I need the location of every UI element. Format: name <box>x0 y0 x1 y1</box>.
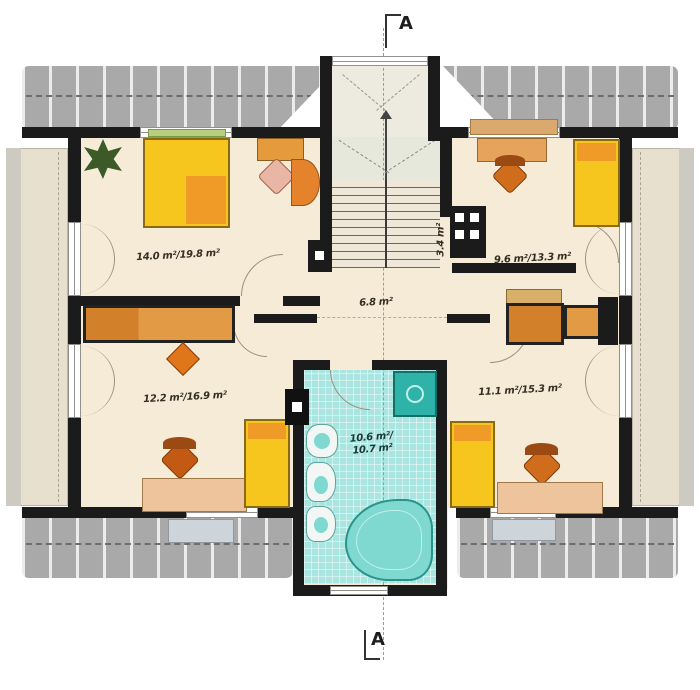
wardrobe <box>506 303 564 345</box>
flue <box>470 230 479 239</box>
toilet-seat <box>314 476 328 494</box>
desk <box>142 478 247 512</box>
bidet-bowl <box>314 517 328 533</box>
flue <box>455 230 464 239</box>
toilet <box>306 462 336 502</box>
left-roof-dashline <box>58 152 59 502</box>
hall-knee-wall-left <box>254 314 317 323</box>
bathroom-top-wall-left <box>304 360 330 370</box>
dormer-right-wall <box>428 56 440 141</box>
bathroom-top-wall-right <box>372 360 436 370</box>
roof-ridge-dash <box>26 543 289 545</box>
bottom-roof-band-left <box>22 514 293 578</box>
chair-back <box>525 443 558 455</box>
shower <box>393 371 437 417</box>
bathroom-right-wall <box>436 360 447 596</box>
right-wall <box>619 127 632 518</box>
wardrobe-end-wall <box>598 297 618 345</box>
window <box>68 222 81 296</box>
washing-machine <box>285 389 309 425</box>
washer-door <box>292 402 302 412</box>
single-bed <box>573 139 620 227</box>
bed-pillow <box>577 143 616 161</box>
dormer-floor <box>332 64 428 138</box>
window-box <box>168 519 234 543</box>
bed-blanket <box>186 176 226 224</box>
window <box>68 344 81 418</box>
floor-plan: 14.0 m²/19.8 m² 9.6 m²/13.3 m² 3.4 m² 6.… <box>0 0 700 690</box>
left-wall <box>68 127 81 518</box>
staircase-stringer <box>385 180 387 268</box>
chimney-block-small <box>308 240 332 272</box>
stair-arrow-head <box>380 110 392 119</box>
hall-dash-line <box>317 317 447 318</box>
window <box>619 344 632 418</box>
bottom-roof-band-right <box>457 514 678 578</box>
bed-pillow <box>248 423 286 439</box>
section-marker-top: A <box>399 13 413 34</box>
wardrobe <box>83 305 235 343</box>
window-planter <box>470 119 558 135</box>
tub-inner <box>356 510 422 570</box>
hall-knee-wall-right <box>447 314 490 323</box>
stairwell-right-wall <box>440 137 452 217</box>
dormer-window <box>332 56 428 66</box>
section-marker-bottom: A <box>371 629 385 650</box>
flue <box>315 251 324 260</box>
bathroom-window <box>330 586 388 595</box>
right-roof-dashline <box>640 152 641 502</box>
window-planter <box>148 129 226 137</box>
single-bed <box>244 419 290 508</box>
shower-drain <box>406 385 424 403</box>
chair-back <box>163 437 196 449</box>
window-box <box>492 519 556 541</box>
wardrobe-top <box>506 289 562 304</box>
desk <box>497 482 603 514</box>
chimney-block <box>450 206 486 258</box>
basin-bowl <box>314 433 330 449</box>
roof-ridge-dash <box>461 543 674 545</box>
flue <box>455 213 464 222</box>
bidet <box>306 506 336 542</box>
tl-room-bottom-stub <box>283 296 320 306</box>
double-bed <box>143 138 230 228</box>
chair-back <box>495 155 525 166</box>
window <box>619 222 632 296</box>
single-bed <box>450 421 495 508</box>
flue <box>470 213 479 222</box>
bed-pillow <box>454 425 491 441</box>
desk <box>257 138 304 161</box>
left-roof-edge <box>6 148 21 506</box>
right-roof-edge <box>679 148 694 506</box>
room-label-stair-closet: 3.4 m² <box>435 215 447 265</box>
